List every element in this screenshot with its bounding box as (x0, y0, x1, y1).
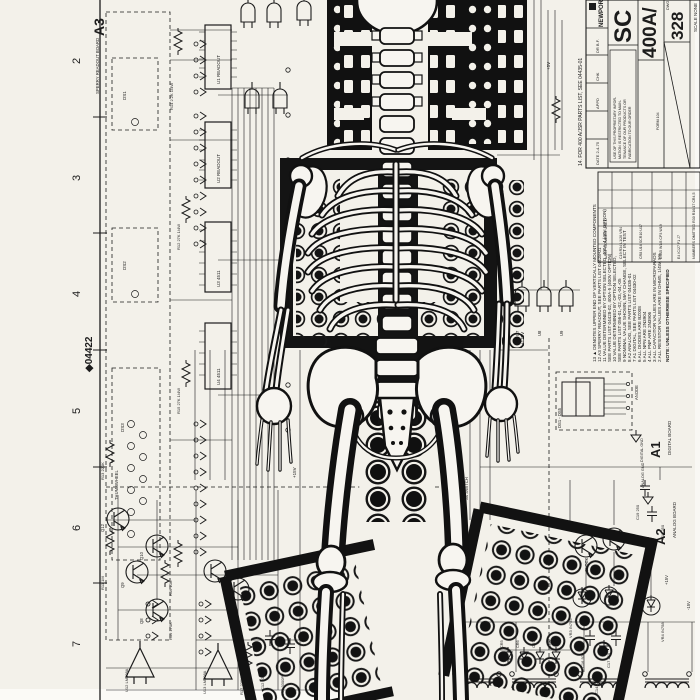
label-q9: Q9 (120, 582, 125, 588)
proprietary-4: FABRICATION TO OUR ORDER (628, 106, 632, 159)
ic-u4-label: U4 4511 (216, 368, 221, 385)
form-number: FORM 104 (656, 112, 660, 130)
brand-name: NEWPORT (599, 0, 605, 27)
label-u8: U8 (537, 330, 542, 336)
label-r11: R11 1M (100, 576, 105, 590)
right-hand (485, 387, 517, 421)
label-m15v-rail: -15V (686, 601, 691, 610)
proprietary-2: MATION IS RESTRICTED TO MAIN- (618, 99, 622, 159)
label-q10: Q10 (139, 551, 144, 560)
label-u12: U12 LM308A (124, 668, 129, 692)
board-a1-name: DIGITAL BOARD (667, 420, 672, 455)
scale-note: SCALE NONE (693, 3, 698, 32)
label-q8: Q8 (139, 618, 144, 624)
approval-appd: APPD (595, 98, 600, 109)
proprietary-3: TENANCE OF OUR PRODUCTS OR (623, 99, 627, 159)
proprietary-1: USE OF THIS PROPRIETARY INFOR- (613, 96, 617, 159)
label-r15: R15 27K 1/4W (176, 388, 181, 414)
label-q12: Q12 (100, 523, 105, 532)
label-ds3: DS3 (120, 423, 125, 432)
label-r12: R12 27K 1/4W (176, 224, 181, 250)
label-c19: C19 250 (635, 504, 640, 520)
ic-u1-label: U1 READOUT (216, 55, 221, 84)
label-digital-gnd: DIGITAL GND (640, 438, 644, 462)
label-u13: U13 LM308A (202, 670, 207, 694)
label-u9: U9 (559, 330, 564, 336)
label-p15: +15V (292, 467, 297, 478)
notes-heading: NOTE: UNLESS OTHERWISE SPECIFIED (665, 269, 671, 362)
label-r16: R16 10K (168, 580, 173, 596)
note-2: 2 ALL RESISTOR VALUES ARE IN OHMS, 1/4W,… (657, 253, 662, 362)
document-number: ◆04422 (84, 336, 95, 373)
board-a3-ref: A3 (91, 18, 107, 36)
zone-6: 6 (71, 525, 83, 531)
title-model: 400A/ (640, 7, 661, 58)
label-r19: R19 270K (168, 622, 173, 640)
ic-u2-label: U2 READOUT (216, 154, 221, 183)
label-ds1: DS1 (122, 91, 127, 100)
label-anode: ANODE (634, 385, 639, 400)
zone-7: 7 (71, 641, 83, 647)
label-ds2: DS2 (122, 261, 127, 270)
ic-u3-label: U3 4511 (216, 270, 221, 287)
board-a2-name: ANALOG BOARD (672, 501, 677, 538)
schematic-skeleton-artwork: 2 3 4 5 6 7 ◆04422 DS1 DS2 DS3 THUMBWHEE… (0, 0, 700, 700)
label-r14: R14 2.2K 1/4W (169, 83, 174, 110)
label-ds-box: DS1 - DS5 (557, 407, 562, 428)
zone-2: 2 (71, 58, 83, 64)
board-a3-name: SPERRY READOUT BOARD (95, 38, 100, 94)
last-used-omitted: NUMBERS OMITTED R30 R16/17 CR4,5 (692, 192, 696, 259)
parts-list-note: 14. FOR 400 A/JSR PARTS LIST, SEE 04435-… (578, 58, 584, 166)
scan-edge-right (695, 0, 700, 700)
board-a1-ref: A1 (648, 441, 663, 458)
label-p5: +5V (546, 62, 551, 70)
last-used-row-4: E4 IC/27 F1 J7 (677, 235, 681, 259)
approval-chk: CHK (595, 72, 600, 81)
label-vr4: VR4 IN758 (660, 622, 665, 642)
label-r13: R13 220K (100, 462, 105, 480)
last-used-row-2: CR8 U16 SCR10 U17 (639, 224, 643, 259)
approval-date: DATE 2-4-75 (595, 141, 600, 165)
approval-dr: DR B.F. (595, 39, 600, 53)
zone-5: 5 (71, 408, 83, 414)
zone-3: 3 (71, 175, 83, 181)
label-analog-gnd: ANALOG GND (641, 462, 645, 488)
zone-4: 4 (71, 291, 83, 297)
title-main: SC (610, 10, 637, 43)
label-p15v-rail: +15V (664, 575, 669, 585)
newport-logo (589, 3, 596, 10)
dwg-number: 328 (668, 12, 687, 40)
dwg-label: DWG (666, 1, 670, 10)
